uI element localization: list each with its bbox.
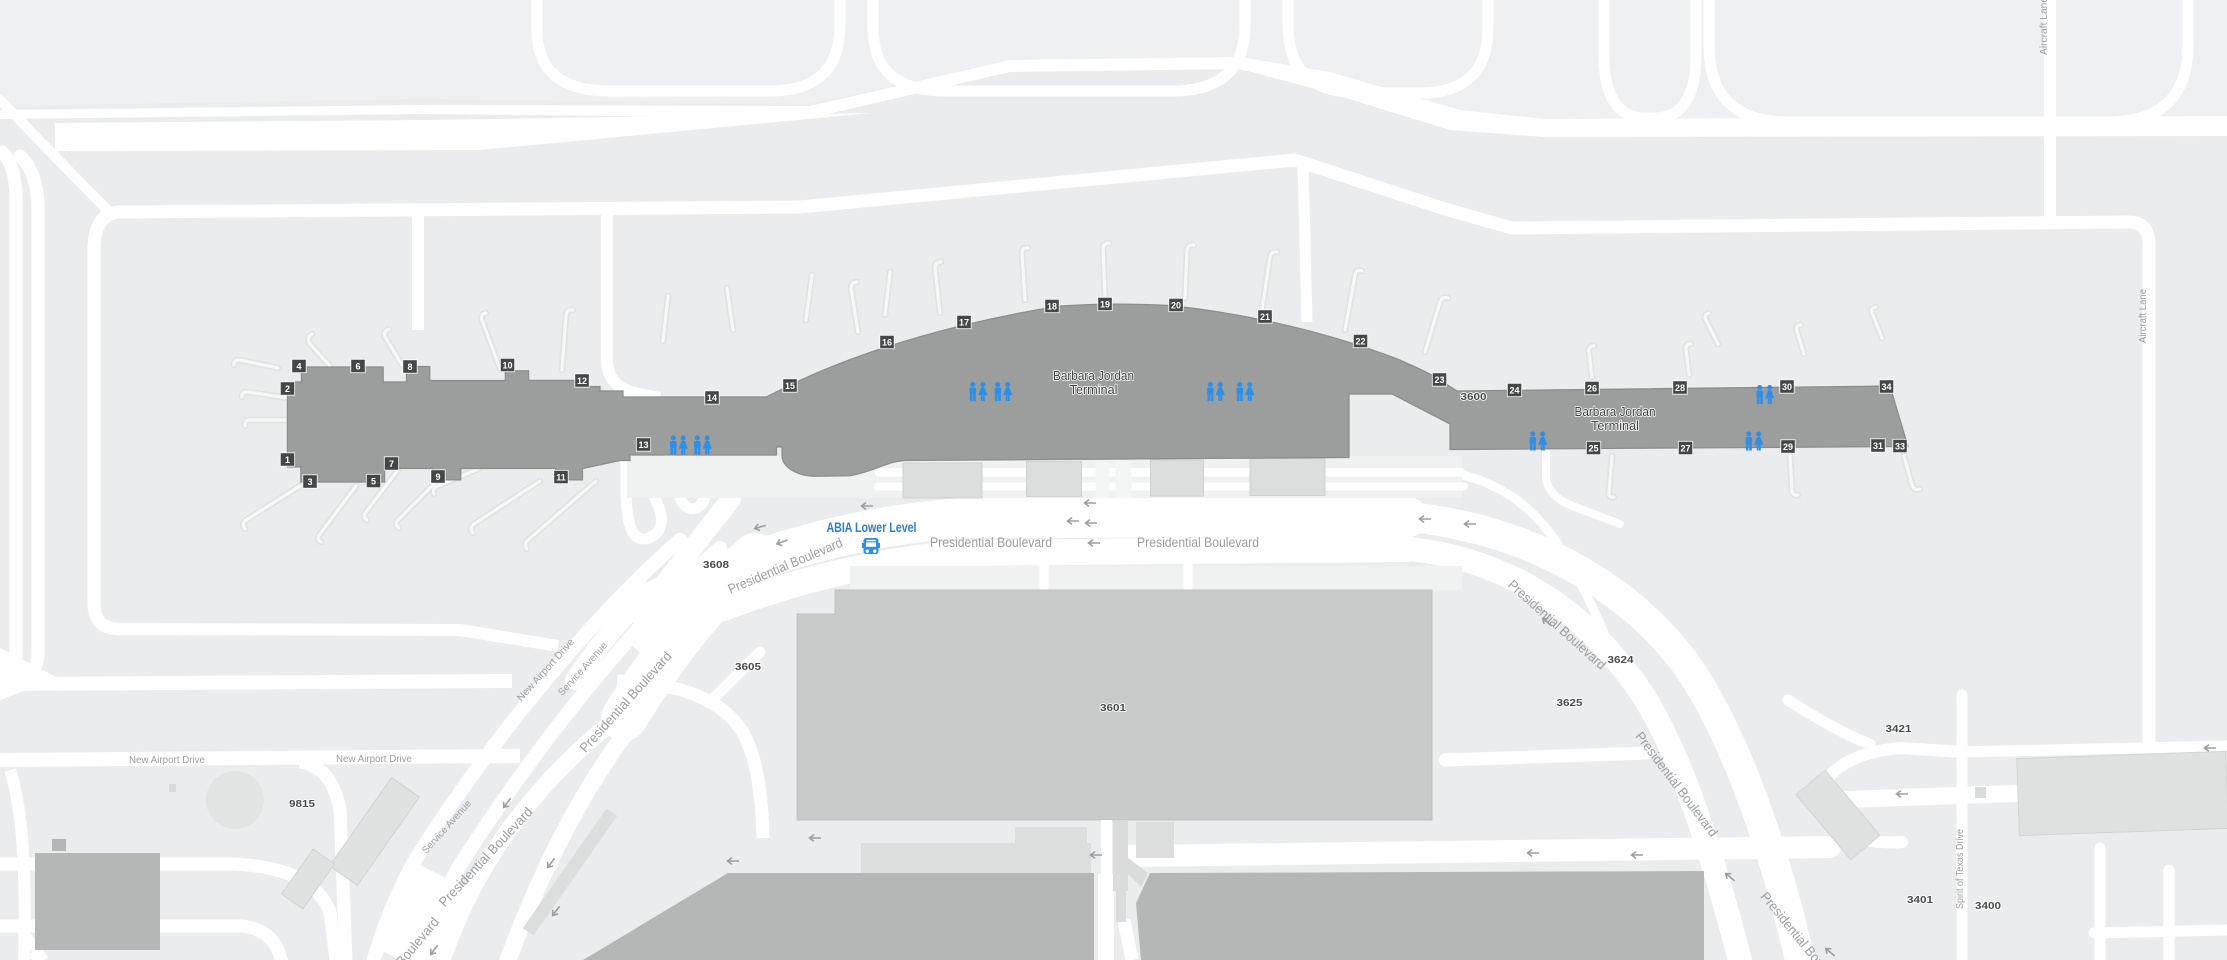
svg-text:7: 7: [389, 459, 394, 469]
svg-text:29: 29: [1783, 442, 1793, 452]
svg-text:22: 22: [1355, 336, 1365, 346]
svg-text:Terminal: Terminal: [1070, 382, 1118, 397]
svg-text:3625: 3625: [1557, 698, 1584, 709]
svg-text:18: 18: [1047, 301, 1057, 311]
svg-text:15: 15: [785, 381, 795, 391]
svg-text:12: 12: [577, 376, 587, 386]
svg-text:Spirit of Texas Drive: Spirit of Texas Drive: [1955, 829, 1966, 909]
svg-text:9815: 9815: [289, 799, 316, 810]
svg-text:Terminal: Terminal: [1591, 418, 1639, 433]
svg-text:34: 34: [1881, 382, 1891, 392]
svg-text:10: 10: [502, 360, 512, 370]
svg-text:Barbara Jordan: Barbara Jordan: [1053, 368, 1134, 383]
svg-text:24: 24: [1509, 385, 1519, 395]
svg-text:3605: 3605: [735, 662, 762, 673]
svg-text:3401: 3401: [1907, 895, 1934, 906]
svg-text:3400: 3400: [1975, 901, 2002, 912]
svg-text:4: 4: [296, 361, 301, 371]
svg-text:11: 11: [556, 472, 566, 482]
svg-text:Aircraft Lane: Aircraft Lane: [2039, 0, 2050, 55]
svg-text:3: 3: [307, 477, 312, 487]
svg-text:3421: 3421: [1886, 724, 1913, 735]
svg-text:6: 6: [355, 361, 360, 371]
svg-text:8: 8: [407, 362, 412, 372]
svg-text:3608: 3608: [703, 560, 730, 571]
svg-text:33: 33: [1895, 441, 1905, 451]
svg-text:9: 9: [435, 472, 440, 482]
svg-text:Presidential Boulevard: Presidential Boulevard: [930, 535, 1052, 550]
svg-text:13: 13: [638, 440, 648, 450]
svg-text:20: 20: [1171, 300, 1181, 310]
svg-text:Aircraft Lane: Aircraft Lane: [2138, 289, 2149, 343]
svg-text:17: 17: [959, 317, 969, 327]
svg-text:New Airport Drive: New Airport Drive: [336, 754, 412, 765]
svg-text:14: 14: [707, 393, 717, 403]
svg-text:3624: 3624: [1608, 655, 1635, 666]
svg-text:Barbara Jordan: Barbara Jordan: [1575, 404, 1656, 419]
svg-text:New Airport Drive: New Airport Drive: [129, 755, 205, 766]
svg-text:19: 19: [1100, 299, 1110, 309]
svg-text:ABIA Lower Level: ABIA Lower Level: [827, 520, 917, 535]
svg-text:25: 25: [1588, 443, 1598, 453]
svg-text:16: 16: [882, 337, 892, 347]
svg-text:21: 21: [1260, 312, 1270, 322]
svg-text:26: 26: [1587, 383, 1597, 393]
svg-text:Presidential Boulevard: Presidential Boulevard: [1137, 535, 1259, 550]
svg-text:31: 31: [1873, 441, 1883, 451]
svg-text:23: 23: [1434, 375, 1444, 385]
svg-text:30: 30: [1782, 382, 1792, 392]
svg-text:28: 28: [1675, 383, 1685, 393]
svg-text:2: 2: [285, 384, 290, 394]
svg-text:27: 27: [1680, 443, 1690, 453]
svg-text:3601: 3601: [1100, 703, 1127, 714]
svg-text:3600: 3600: [1461, 392, 1488, 403]
svg-text:1: 1: [285, 455, 290, 465]
svg-text:5: 5: [371, 476, 376, 486]
